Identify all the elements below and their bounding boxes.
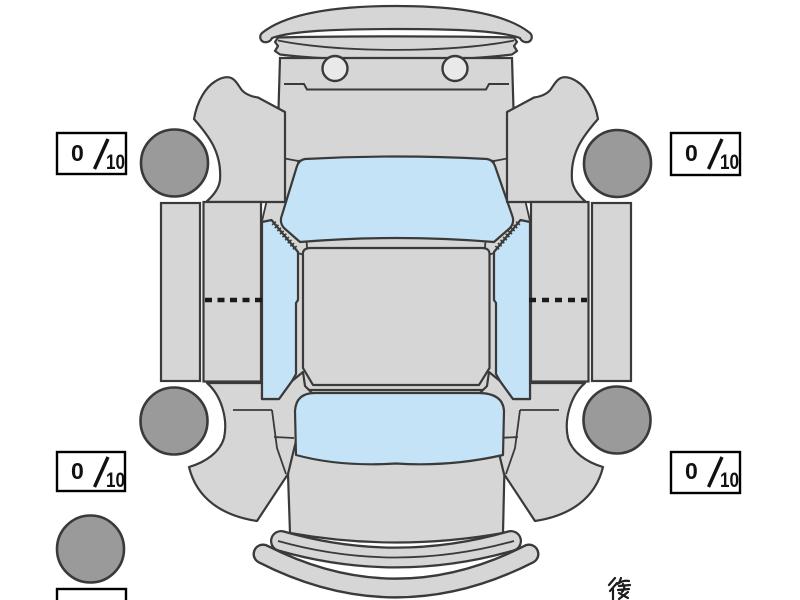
svg-text:0: 0 bbox=[71, 458, 84, 484]
svg-text:0: 0 bbox=[685, 458, 698, 484]
svg-text:10: 10 bbox=[720, 469, 739, 492]
svg-text:10: 10 bbox=[106, 469, 125, 492]
svg-text:0: 0 bbox=[71, 140, 84, 166]
svg-text:10: 10 bbox=[106, 151, 125, 174]
svg-text:10: 10 bbox=[720, 151, 739, 174]
svg-text:0: 0 bbox=[685, 140, 698, 166]
